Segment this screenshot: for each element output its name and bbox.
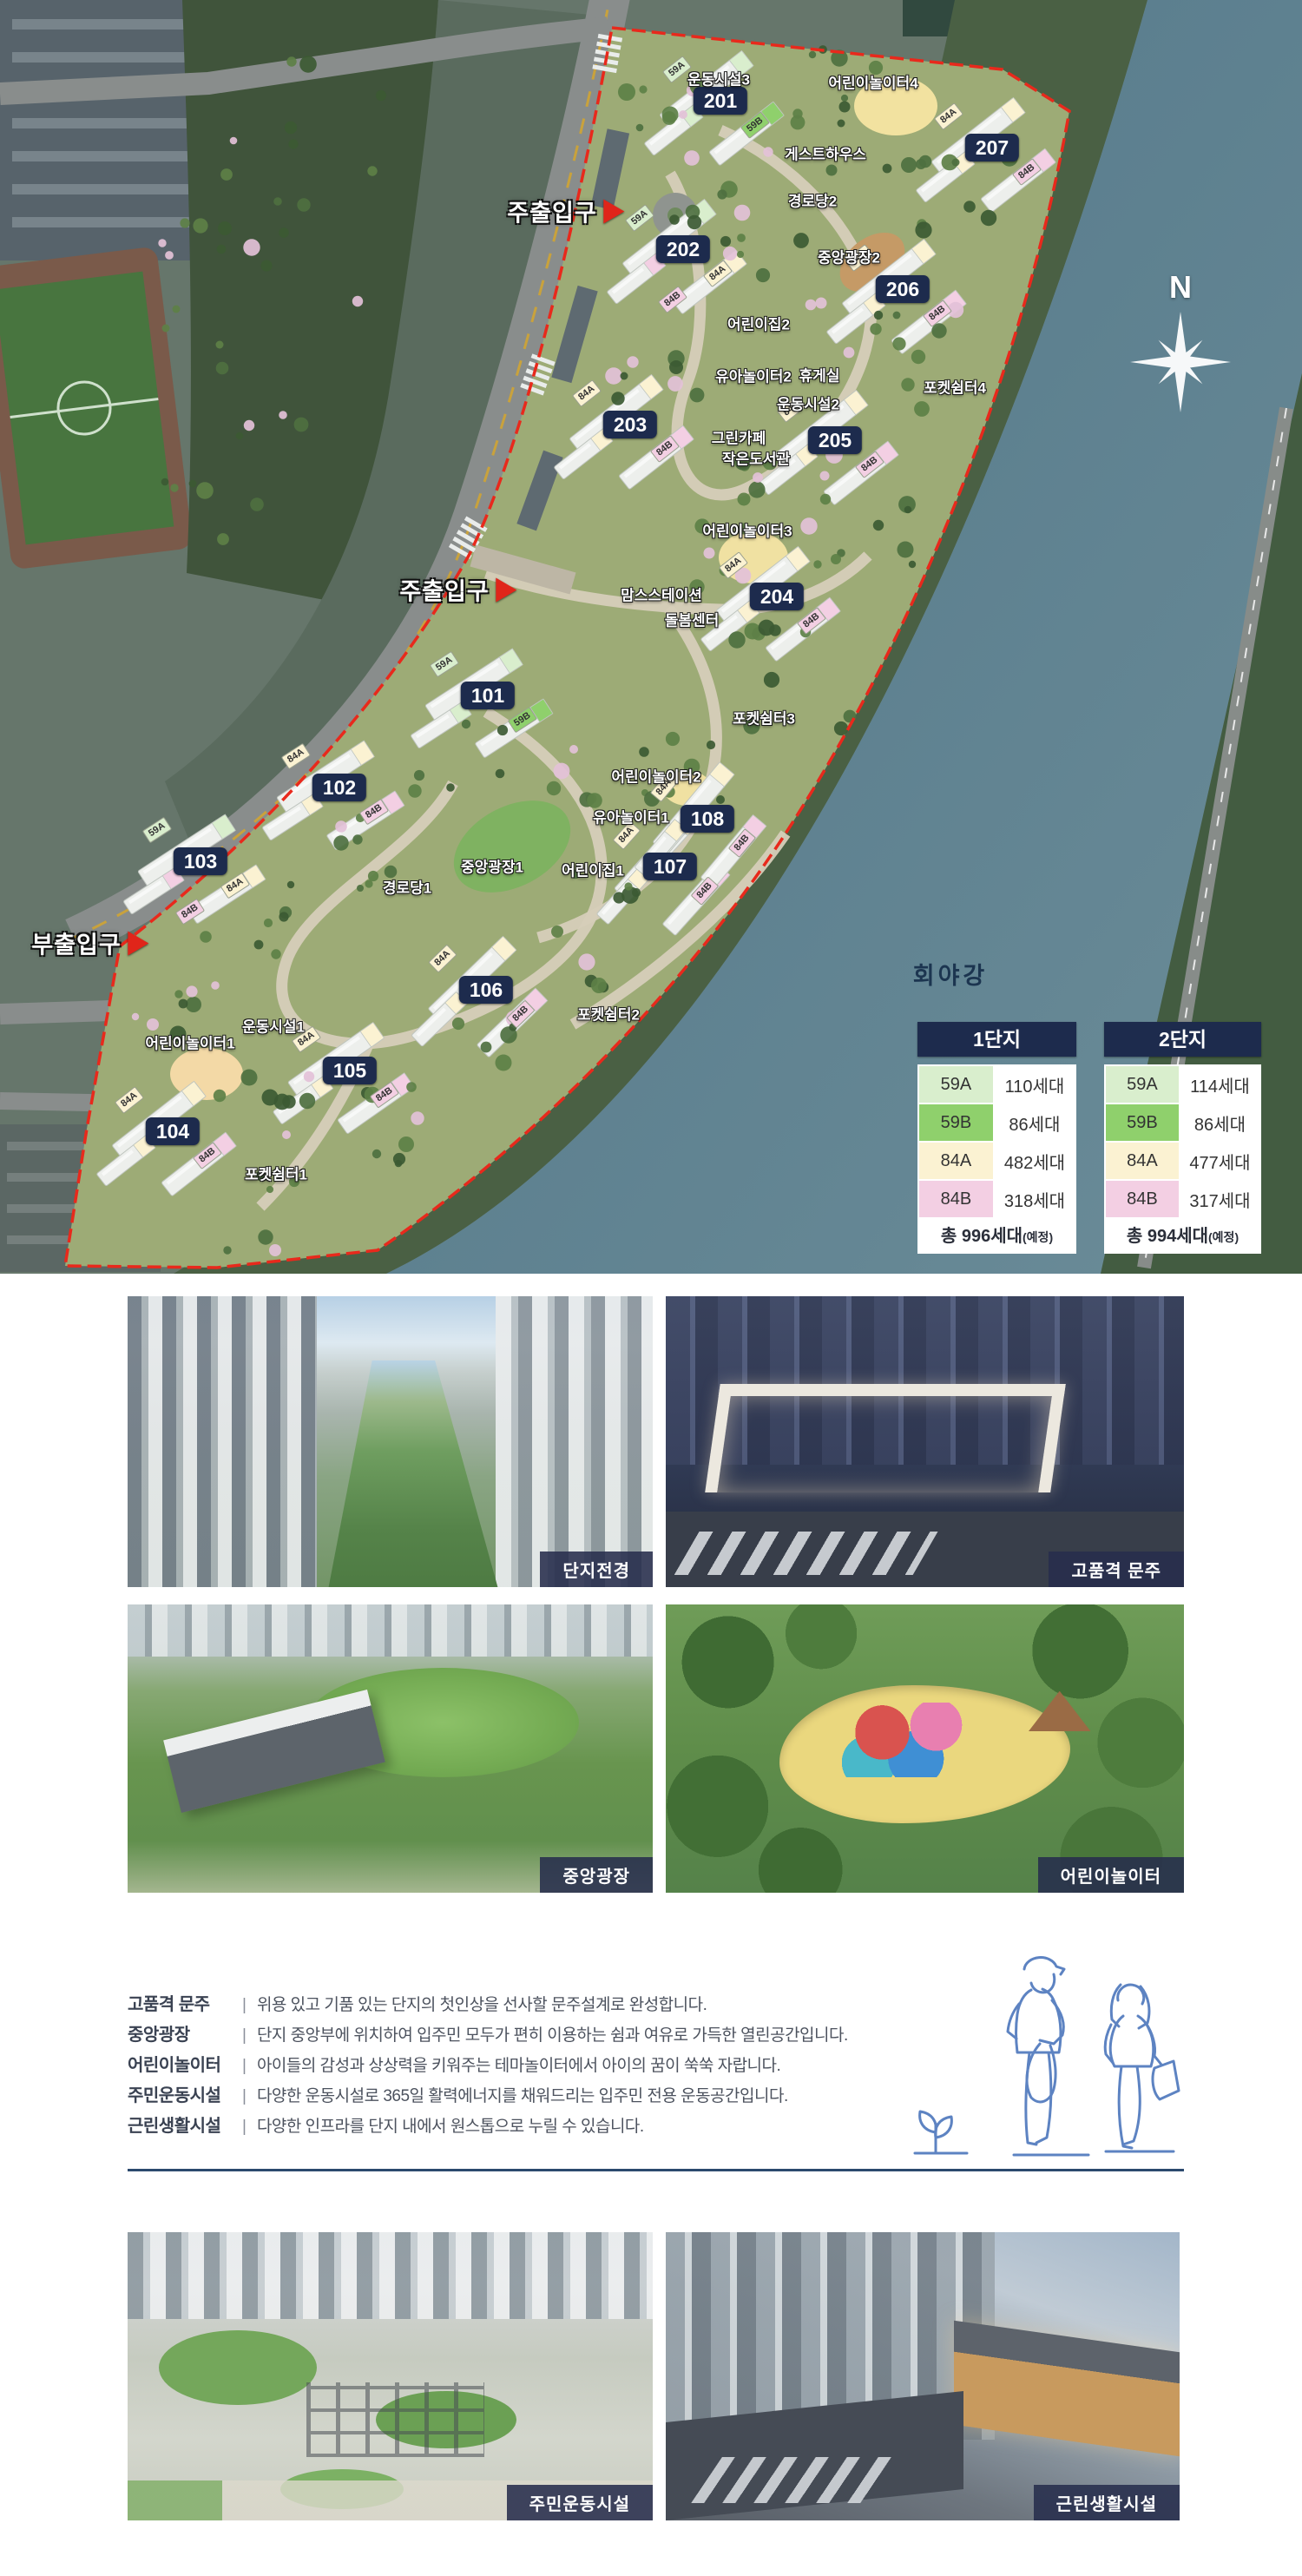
building-badge-104: 104: [146, 1117, 200, 1145]
facility-label: 포켓쉼터1: [245, 1163, 307, 1184]
photo-caption: 단지전경: [540, 1552, 653, 1587]
unit-table-total: 총 996세대(예정): [917, 1219, 1076, 1254]
building-badge-206: 206: [876, 275, 930, 303]
entrance-label: 부출입구: [31, 926, 121, 960]
render-photo-plaza: 중앙광장: [128, 1604, 653, 1893]
unit-table-total: 총 994세대(예정): [1104, 1219, 1261, 1254]
unit-type-cell: 59A: [1105, 1065, 1180, 1104]
river-label: 회야강: [885, 957, 1016, 991]
feature-term: 근린생활시설: [128, 2112, 242, 2137]
facility-label: 휴게실: [799, 364, 840, 385]
scene-layer: [496, 1296, 654, 1587]
entrance-label: 주출입구: [399, 573, 489, 607]
photo-caption: 어린이놀이터: [1038, 1857, 1184, 1893]
unit-table-row: 59A110세대: [918, 1065, 1075, 1104]
unit-table-row: 59B86세대: [1105, 1104, 1260, 1142]
unit-type-cell: 84B: [918, 1180, 994, 1218]
total-count: 총 996세대: [941, 1227, 1023, 1246]
facility-label: 중앙광장2: [818, 246, 880, 267]
scene-layer: [674, 1532, 937, 1575]
entrance-marker: 부출입구: [31, 926, 148, 960]
unit-table-row: 59A114세대: [1105, 1065, 1260, 1104]
feature-desc: 다양한 운동시설로 365일 활력에너지를 채워드리는 입주민 전용 운동공간입…: [257, 2083, 788, 2106]
photo-caption: 고품격 문주: [1049, 1552, 1184, 1587]
unit-table-row: 84B318세대: [918, 1180, 1075, 1218]
render-photo-gate: 고품격 문주: [666, 1296, 1184, 1587]
facility-label: 어린이놀이터2: [611, 765, 700, 787]
building-badge-107: 107: [643, 853, 697, 880]
unit-table-row: 84B317세대: [1105, 1180, 1260, 1218]
building-badge-108: 108: [681, 805, 734, 833]
feature-desc: 아이들의 감성과 상상력을 키워주는 테마놀이터에서 아이의 꿈이 쑥쑥 자랍니…: [257, 2052, 780, 2076]
brochure-page: 59A59B10184A84B10259A84A84B10384A84B1048…: [0, 0, 1302, 2576]
unit-count-cell: 477세대: [1180, 1142, 1260, 1180]
unit-count-cell: 114세대: [1180, 1065, 1260, 1104]
total-count: 총 994세대: [1127, 1227, 1208, 1246]
building-badge-106: 106: [459, 976, 513, 1004]
feature-row: 근린생활시설|다양한 인프라를 단지 내에서 원스톱으로 누릴 수 있습니다.: [128, 2112, 996, 2142]
feature-term: 주민운동시설: [128, 2081, 242, 2106]
total-note: (예정): [1023, 1230, 1053, 1244]
unit-table-row: 84A482세대: [918, 1142, 1075, 1180]
facility-label: 작은도서관: [722, 447, 790, 469]
walking-couple-illustration: [910, 1920, 1213, 2181]
scene-layer: [128, 1296, 317, 1587]
render-photo-retail: 근린생활시설: [666, 2232, 1180, 2520]
compass: N: [1124, 269, 1237, 423]
facility-label: 포켓쉼터3: [733, 707, 795, 728]
unit-table-body: 59A114세대59B86세대84A477세대84B317세대: [1104, 1064, 1261, 1219]
feature-separator: |: [242, 2057, 247, 2076]
scene-layer: [159, 2330, 317, 2405]
feature-separator: |: [242, 2087, 247, 2106]
facility-label: 유아놀이터2: [715, 365, 792, 386]
entrance-marker: 주출입구: [507, 194, 624, 228]
unit-count-cell: 110세대: [994, 1065, 1075, 1104]
feature-term: 고품격 문주: [128, 1990, 242, 2015]
scene-layer: [164, 1690, 386, 1813]
facility-label: 유아놀이터1: [593, 806, 669, 827]
compass-n-label: N: [1124, 269, 1237, 306]
feature-row: 주민운동시설|다양한 운동시설로 365일 활력에너지를 채워드리는 입주민 전…: [128, 2081, 996, 2112]
section-divider: [128, 2169, 1184, 2171]
facility-label: 어린이놀이터3: [702, 519, 792, 541]
building-badge-201: 201: [694, 87, 747, 115]
facility-label: 어린이집1: [562, 859, 624, 880]
facility-label: 중앙광장1: [461, 855, 523, 877]
building-badge-102: 102: [312, 774, 366, 801]
facility-label: 돌봄센터: [665, 609, 720, 630]
entrance-marker: 주출입구: [399, 573, 516, 607]
feature-term: 어린이놀이터: [128, 2051, 242, 2076]
unit-type-cell: 59A: [918, 1065, 994, 1104]
unit-type-cell: 84A: [918, 1142, 994, 1180]
photo-caption: 주민운동시설: [507, 2485, 653, 2520]
unit-table-2: 2단지59A114세대59B86세대84A477세대84B317세대총 994세…: [1104, 1022, 1261, 1254]
unit-type-cell: 84A: [1105, 1142, 1180, 1180]
scene-layer: [691, 2457, 897, 2503]
facility-label: 운동시설2: [777, 392, 839, 414]
building-badge-103: 103: [174, 847, 227, 875]
building-badge-203: 203: [603, 411, 657, 438]
unit-count-cell: 317세대: [1180, 1180, 1260, 1218]
unit-type-cell: 59B: [918, 1104, 994, 1142]
unit-table-row: 59B86세대: [918, 1104, 1075, 1142]
facility-label: 어린이놀이터4: [828, 71, 917, 93]
building-badge-101: 101: [461, 682, 515, 709]
scene-layer: [306, 2382, 485, 2457]
building-badge-205: 205: [808, 426, 862, 454]
entrance-label: 주출입구: [507, 194, 596, 228]
unit-table-title: 1단지: [917, 1022, 1076, 1057]
scene-layer: [705, 1384, 1066, 1492]
unit-count-cell: 482세대: [994, 1142, 1075, 1180]
unit-table-body: 59A110세대59B86세대84A482세대84B318세대: [917, 1064, 1076, 1219]
facility-label: 경로당2: [788, 189, 837, 211]
facility-label: 포켓쉼터2: [577, 1003, 640, 1024]
photo-caption: 중앙광장: [540, 1857, 653, 1893]
feature-list: 고품격 문주|위용 있고 기품 있는 단지의 첫인상을 선사할 문주설계로 완성…: [128, 1990, 996, 2142]
site-plan-map: 59A59B10184A84B10259A84A84B10384A84B1048…: [0, 0, 1302, 1274]
entrance-arrow-icon: [128, 931, 149, 955]
scene-layer: [128, 2232, 653, 2319]
photo-caption: 근린생활시설: [1034, 2485, 1180, 2520]
facility-label: 그린카페: [712, 426, 766, 448]
unit-table-row: 84A477세대: [1105, 1142, 1260, 1180]
scene-layer: [128, 1604, 653, 1657]
entrance-arrow-icon: [604, 199, 625, 223]
unit-count-cell: 318세대: [994, 1180, 1075, 1218]
entrance-arrow-icon: [496, 577, 517, 602]
facility-label: 운동시설3: [687, 68, 750, 89]
feature-row: 고품격 문주|위용 있고 기품 있는 단지의 첫인상을 선사할 문주설계로 완성…: [128, 1990, 996, 2020]
scene-layer: [286, 1360, 527, 1587]
unit-table-title: 2단지: [1104, 1022, 1261, 1057]
feature-separator: |: [242, 2026, 247, 2046]
feature-term: 중앙광장: [128, 2020, 242, 2046]
compass-star-icon: [1124, 306, 1237, 418]
feature-desc: 다양한 인프라를 단지 내에서 원스톱으로 누릴 수 있습니다.: [257, 2113, 644, 2137]
building-badge-105: 105: [323, 1057, 377, 1084]
total-note: (예정): [1208, 1230, 1239, 1244]
feature-desc: 단지 중앙부에 위치하여 입주민 모두가 편히 이용하는 쉼과 여유로 가득한 …: [257, 2022, 848, 2046]
facility-label: 어린이놀이터1: [145, 1031, 234, 1053]
unit-type-cell: 84B: [1105, 1180, 1180, 1218]
building-badge-202: 202: [656, 235, 710, 263]
feature-row: 중앙광장|단지 중앙부에 위치하여 입주민 모두가 편히 이용하는 쉼과 여유로…: [128, 2020, 996, 2051]
scene-layer: [842, 1703, 976, 1777]
feature-row: 어린이놀이터|아이들의 감성과 상상력을 키워주는 테마놀이터에서 아이의 꿈이…: [128, 2051, 996, 2081]
building-badge-207: 207: [965, 134, 1019, 161]
unit-count-cell: 86세대: [1180, 1104, 1260, 1142]
facility-label: 포켓쉼터4: [924, 376, 986, 398]
facility-label: 맘스스테이션: [621, 583, 702, 605]
unit-type-cell: 59B: [1105, 1104, 1180, 1142]
facility-label: 게스트하우스: [785, 142, 866, 164]
facility-label: 운동시설1: [242, 1015, 305, 1037]
feature-desc: 위용 있고 기품 있는 단지의 첫인상을 선사할 문주설계로 완성합니다.: [257, 1992, 707, 2015]
render-photo-playground: 어린이놀이터: [666, 1604, 1184, 1893]
feature-separator: |: [242, 1996, 247, 2015]
render-photo-fitness: 주민운동시설: [128, 2232, 653, 2520]
unit-table-1: 1단지59A110세대59B86세대84A482세대84B318세대총 996세…: [917, 1022, 1076, 1254]
facility-label: 어린이집2: [727, 313, 790, 334]
render-photo-complex: 단지전경: [128, 1296, 653, 1587]
feature-separator: |: [242, 2118, 247, 2137]
building-badge-204: 204: [750, 583, 804, 610]
facility-label: 경로당1: [383, 876, 431, 898]
unit-count-cell: 86세대: [994, 1104, 1075, 1142]
